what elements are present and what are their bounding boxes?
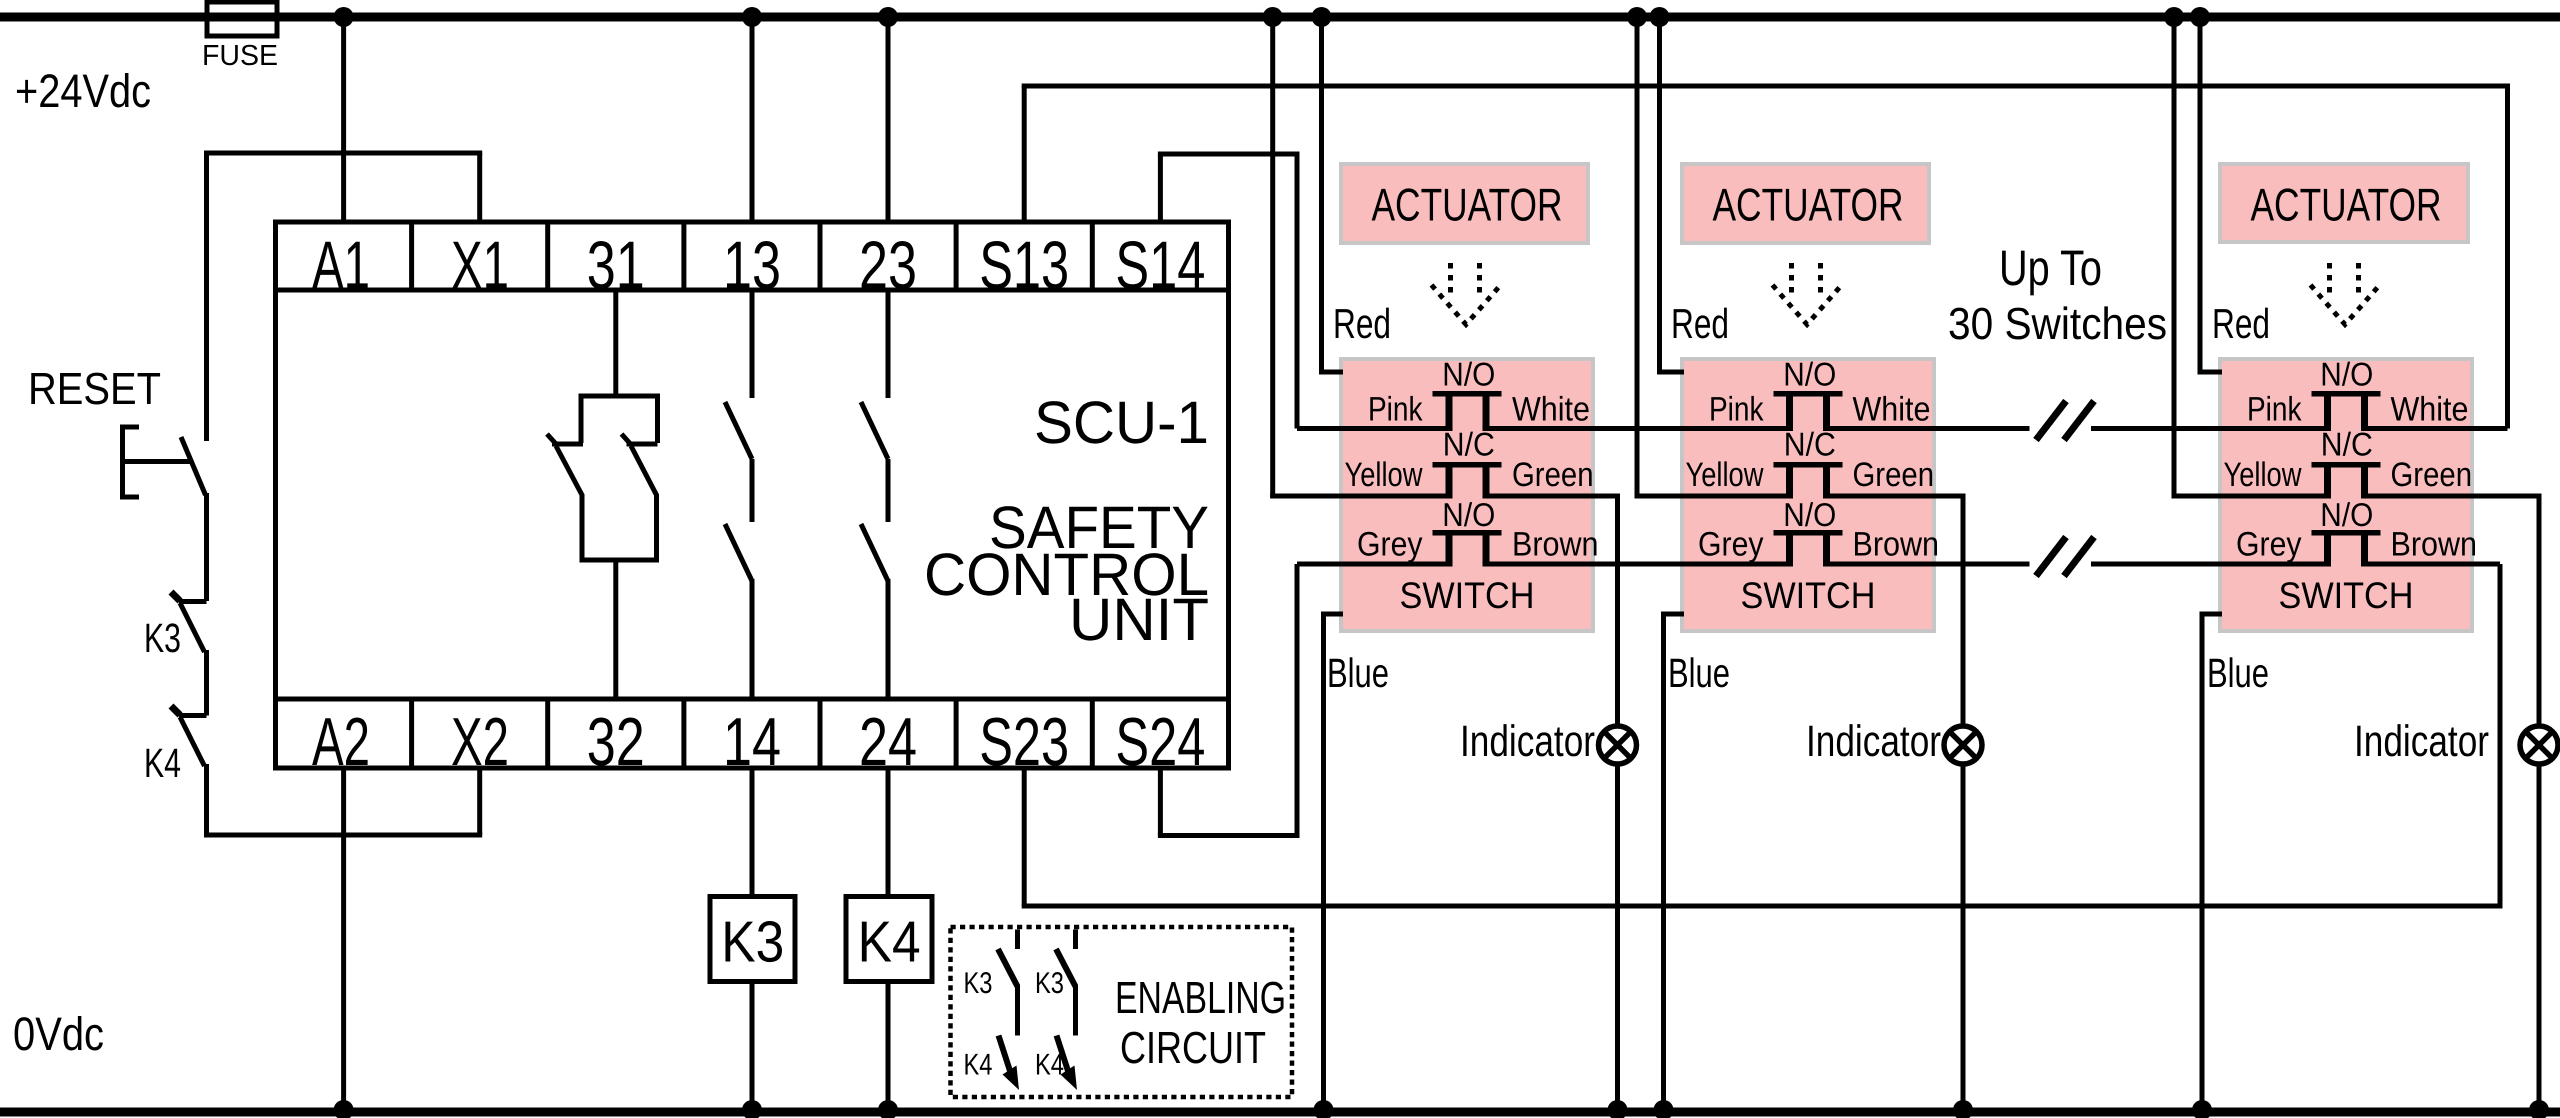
- svg-text:A2: A2: [312, 704, 370, 780]
- svg-text:K4: K4: [1035, 1049, 1064, 1082]
- svg-text:ACTUATOR: ACTUATOR: [1372, 179, 1563, 231]
- svg-text:N/O: N/O: [1442, 356, 1495, 393]
- svg-text:Blue: Blue: [1327, 650, 1389, 696]
- svg-text:Indicator: Indicator: [1806, 717, 1941, 766]
- svg-text:23: 23: [859, 228, 917, 304]
- svg-text:K4: K4: [964, 1049, 993, 1082]
- svg-text:N/C: N/C: [1443, 425, 1495, 462]
- svg-text:Pink: Pink: [2247, 391, 2302, 429]
- svg-text:Red: Red: [1671, 300, 1729, 347]
- svg-text:Blue: Blue: [2207, 650, 2269, 696]
- svg-text:Brown: Brown: [2391, 526, 2478, 564]
- svg-text:White: White: [1853, 391, 1931, 429]
- svg-text:RESET: RESET: [28, 363, 161, 414]
- svg-text:UNIT: UNIT: [1069, 586, 1209, 653]
- svg-text:Pink: Pink: [1709, 391, 1764, 429]
- svg-text:Green: Green: [1512, 456, 1594, 494]
- svg-text:Grey: Grey: [2236, 526, 2302, 564]
- svg-text:CIRCUIT: CIRCUIT: [1120, 1022, 1266, 1073]
- svg-text:N/C: N/C: [2321, 425, 2373, 462]
- svg-text:White: White: [1512, 391, 1590, 429]
- svg-text:Green: Green: [1853, 456, 1935, 494]
- svg-text:N/O: N/O: [1783, 496, 1836, 533]
- svg-text:Green: Green: [2391, 456, 2473, 494]
- svg-text:S23: S23: [979, 704, 1069, 780]
- svg-text:Indicator: Indicator: [1460, 717, 1595, 766]
- svg-text:Blue: Blue: [1668, 650, 1730, 696]
- svg-text:SWITCH: SWITCH: [1400, 575, 1535, 616]
- svg-text:31: 31: [587, 228, 645, 304]
- svg-text:Grey: Grey: [1357, 526, 1423, 564]
- svg-text:32: 32: [587, 704, 645, 780]
- svg-text:K4: K4: [144, 740, 181, 786]
- svg-text:N/O: N/O: [1783, 356, 1836, 393]
- svg-text:24: 24: [859, 704, 917, 780]
- svg-text:+24Vdc: +24Vdc: [15, 64, 151, 117]
- svg-text:X2: X2: [451, 704, 509, 780]
- svg-text:N/C: N/C: [1784, 425, 1836, 462]
- svg-text:N/O: N/O: [1442, 496, 1495, 533]
- svg-text:SWITCH: SWITCH: [2279, 575, 2414, 616]
- svg-text:Yellow: Yellow: [1686, 456, 1764, 494]
- svg-text:K3: K3: [964, 967, 993, 1000]
- svg-text:Up To: Up To: [1999, 240, 2102, 296]
- svg-text:0Vdc: 0Vdc: [13, 1007, 104, 1060]
- svg-text:K4: K4: [858, 910, 921, 975]
- svg-text:X1: X1: [451, 228, 509, 304]
- svg-text:ENABLING: ENABLING: [1115, 972, 1286, 1023]
- svg-text:K3: K3: [1035, 967, 1064, 1000]
- svg-text:Brown: Brown: [1853, 526, 1940, 564]
- svg-text:30 Switches: 30 Switches: [1948, 298, 2167, 349]
- svg-text:N/O: N/O: [2320, 356, 2373, 393]
- svg-text:S24: S24: [1115, 704, 1205, 780]
- svg-text:Red: Red: [2212, 300, 2270, 347]
- svg-text:S13: S13: [979, 228, 1069, 304]
- svg-text:K3: K3: [144, 615, 181, 661]
- svg-text:White: White: [2391, 391, 2469, 429]
- svg-text:K3: K3: [721, 910, 784, 975]
- svg-text:ACTUATOR: ACTUATOR: [2251, 179, 2442, 231]
- svg-text:14: 14: [723, 704, 781, 780]
- svg-text:13: 13: [723, 228, 781, 304]
- svg-text:Red: Red: [1333, 300, 1391, 347]
- svg-text:Indicator: Indicator: [2354, 717, 2489, 766]
- svg-text:SWITCH: SWITCH: [1741, 575, 1876, 616]
- svg-text:S14: S14: [1115, 228, 1205, 304]
- svg-text:Brown: Brown: [1512, 526, 1599, 564]
- svg-text:Grey: Grey: [1698, 526, 1764, 564]
- svg-text:Pink: Pink: [1368, 391, 1423, 429]
- svg-text:A1: A1: [312, 228, 370, 304]
- svg-text:N/O: N/O: [2320, 496, 2373, 533]
- svg-text:FUSE: FUSE: [202, 40, 278, 72]
- svg-text:SCU-1: SCU-1: [1034, 389, 1209, 456]
- svg-text:Yellow: Yellow: [2224, 456, 2302, 494]
- svg-text:ACTUATOR: ACTUATOR: [1713, 179, 1904, 231]
- svg-text:Yellow: Yellow: [1345, 456, 1423, 494]
